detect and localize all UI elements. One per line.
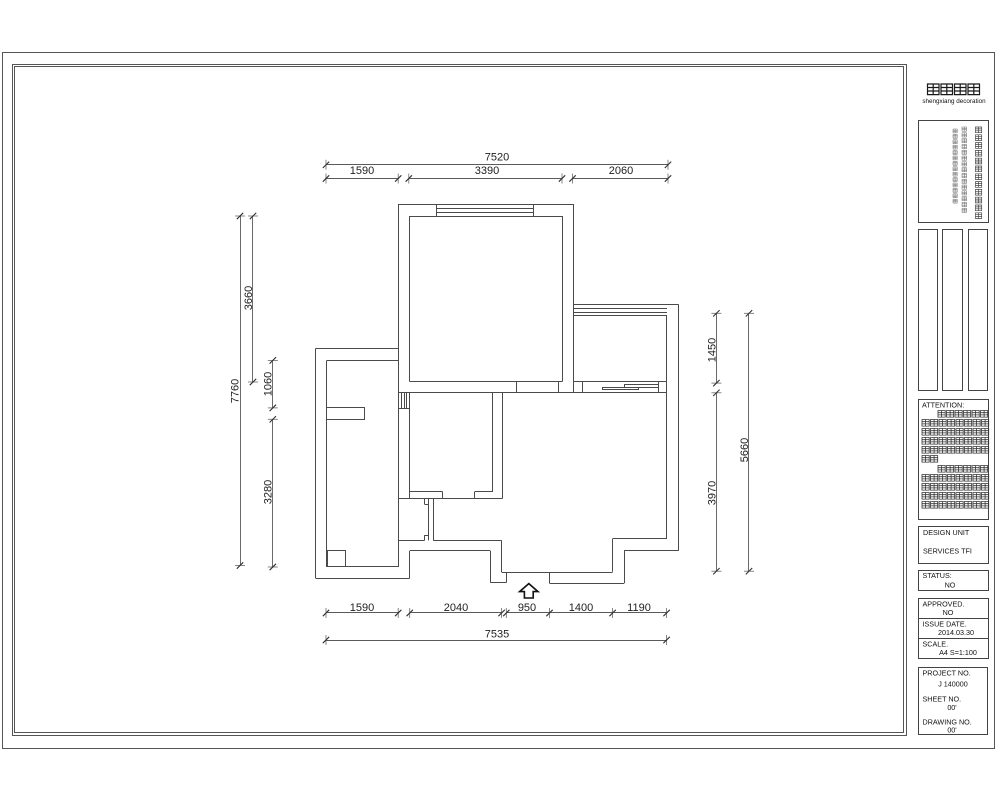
svg-text:1590: 1590 — [350, 602, 374, 614]
svg-text:1590: 1590 — [350, 165, 374, 177]
svg-text:DESIGN UNIT: DESIGN UNIT — [923, 528, 970, 537]
svg-text:A4 S=1:100: A4 S=1:100 — [939, 648, 977, 657]
svg-text:1400: 1400 — [569, 602, 593, 614]
svg-text:2014.03.30: 2014.03.30 — [938, 628, 974, 637]
svg-text:J 140000: J 140000 — [938, 680, 968, 689]
svg-text:5660: 5660 — [739, 438, 751, 462]
svg-text:7760: 7760 — [230, 379, 242, 403]
svg-text:2060: 2060 — [609, 165, 633, 177]
svg-text:00': 00' — [947, 703, 957, 712]
svg-text:7520: 7520 — [485, 152, 509, 164]
svg-text:1060: 1060 — [262, 372, 274, 396]
svg-text:950: 950 — [518, 602, 536, 614]
svg-text:PROJECT NO.: PROJECT NO. — [923, 669, 971, 678]
svg-text:NO: NO — [945, 581, 956, 590]
svg-text:3390: 3390 — [475, 165, 499, 177]
svg-text:3660: 3660 — [243, 286, 255, 310]
svg-text:ATTENTION:: ATTENTION: — [922, 401, 964, 410]
svg-text:NO: NO — [943, 608, 954, 617]
svg-text:1190: 1190 — [627, 602, 651, 614]
svg-text:2040: 2040 — [444, 602, 468, 614]
svg-text:7535: 7535 — [485, 629, 509, 641]
svg-text:00': 00' — [947, 726, 957, 735]
svg-text:3970: 3970 — [706, 481, 718, 505]
svg-text:STATUS:: STATUS: — [923, 571, 952, 580]
svg-text:3280: 3280 — [262, 480, 274, 504]
svg-text:SERVICES TFI: SERVICES TFI — [923, 547, 972, 556]
svg-text:shengxiang decoration: shengxiang decoration — [922, 98, 986, 105]
svg-text:1450: 1450 — [706, 338, 718, 362]
